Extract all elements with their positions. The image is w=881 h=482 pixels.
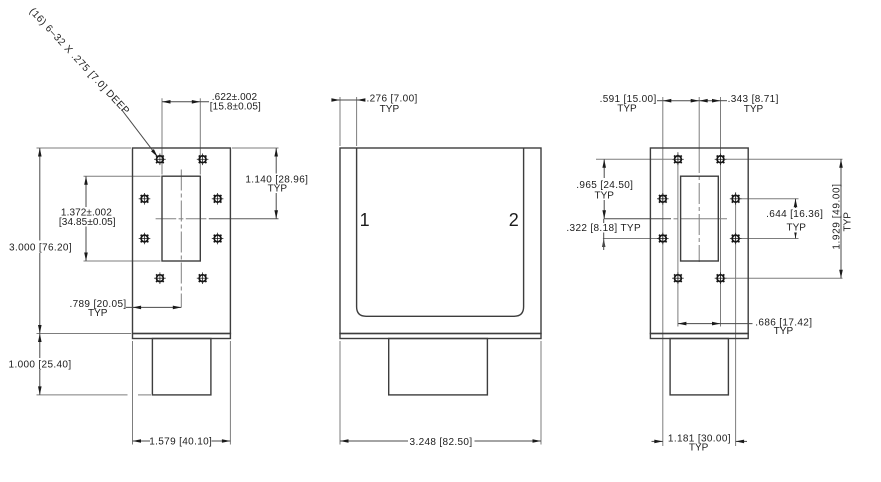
- svg-text:TYP: TYP: [744, 104, 764, 115]
- svg-text:1.000 [25.40]: 1.000 [25.40]: [9, 359, 72, 370]
- svg-text:1.579 [40.10]: 1.579 [40.10]: [149, 437, 212, 448]
- svg-text:TYP: TYP: [594, 191, 614, 202]
- svg-text:.644 [16.36]: .644 [16.36]: [766, 209, 823, 220]
- svg-text:3.000 [76.20]: 3.000 [76.20]: [9, 243, 72, 254]
- svg-text:TYP: TYP: [843, 212, 854, 232]
- svg-text:TYP: TYP: [786, 223, 806, 234]
- svg-text:TYP: TYP: [617, 103, 637, 114]
- svg-text:[15.8±0.05]: [15.8±0.05]: [210, 101, 261, 112]
- svg-text:[34.85±0.05]: [34.85±0.05]: [59, 217, 116, 228]
- svg-text:2: 2: [509, 210, 519, 230]
- svg-text:1.929 [49.00]: 1.929 [49.00]: [832, 183, 843, 249]
- svg-text:TYP: TYP: [774, 326, 794, 337]
- svg-text:(16) 6–32 X .275 [7.0] DEEP: (16) 6–32 X .275 [7.0] DEEP: [27, 6, 132, 117]
- svg-text:1: 1: [360, 210, 370, 230]
- svg-text:TYP: TYP: [380, 104, 400, 115]
- svg-text:TYP: TYP: [689, 442, 709, 453]
- svg-text:3.248 [82.50]: 3.248 [82.50]: [410, 437, 473, 448]
- svg-text:TYP: TYP: [88, 308, 108, 319]
- svg-text:.965 [24.50]: .965 [24.50]: [576, 180, 633, 191]
- svg-text:TYP: TYP: [268, 184, 288, 195]
- svg-text:.322 [8.18] TYP: .322 [8.18] TYP: [566, 223, 641, 234]
